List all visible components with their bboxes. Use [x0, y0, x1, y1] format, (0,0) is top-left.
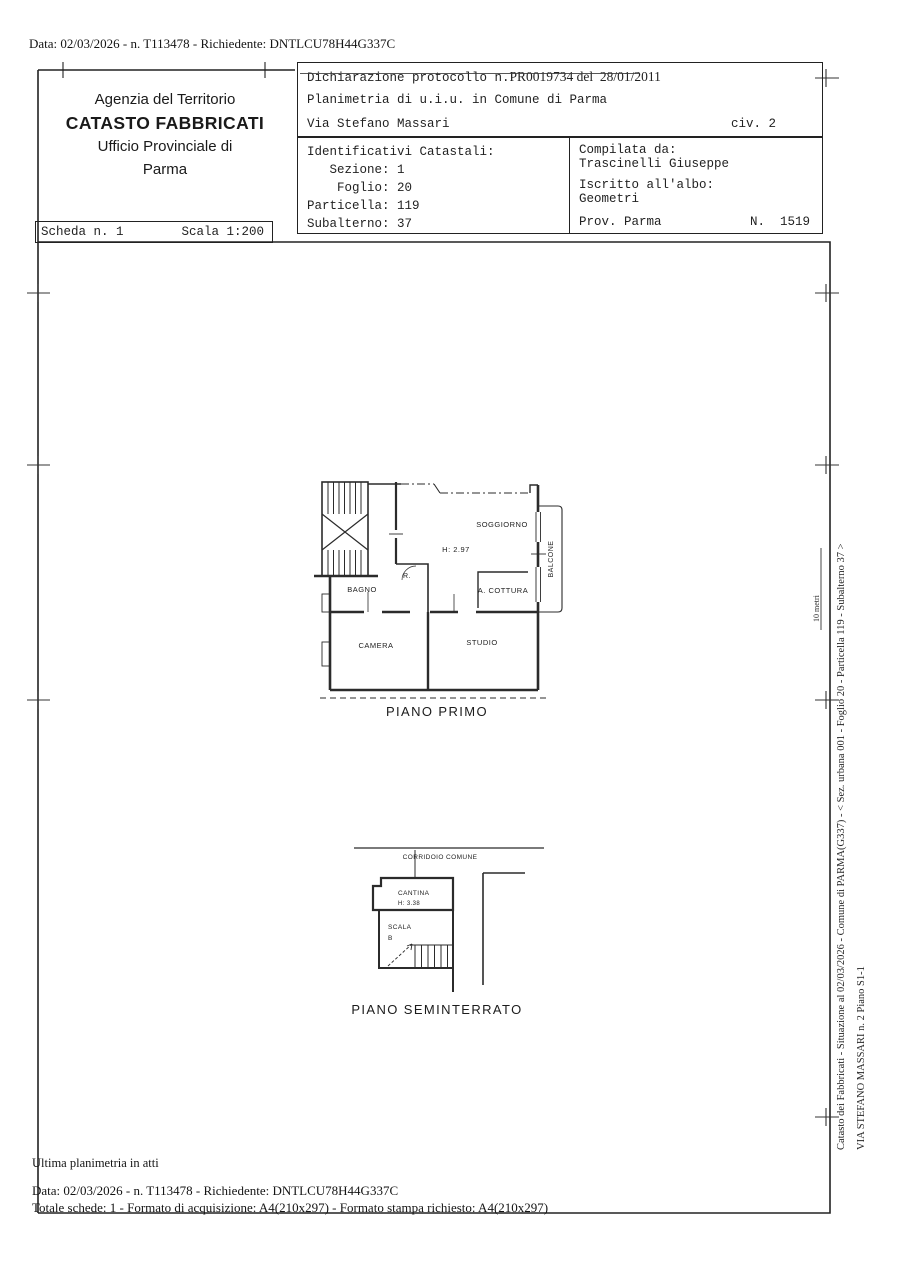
office-city: Parma — [40, 158, 290, 181]
province-label: Prov. Parma — [579, 215, 662, 229]
albo-value: Geometri — [579, 192, 822, 206]
scheda-number: Scheda n. 1 — [41, 225, 124, 239]
first-floor-plan: SOGGIORNO H: 2.97 R. BAGNO A. COTTURA CA… — [306, 472, 568, 722]
footer-data-line: Data: 02/03/2026 - n. T113478 - Richiede… — [32, 1183, 398, 1199]
street-name: Via Stefano Massari — [307, 117, 450, 131]
planimetria-line: Planimetria di u.i.u. in Comune di Parma — [307, 93, 814, 107]
office-line: Ufficio Provinciale di — [40, 135, 290, 158]
registration-number: N. 1519 — [750, 215, 810, 229]
protocol-row: Dichiarazione protocollo n.PR0019734 del… — [307, 69, 814, 85]
albo-label: Iscritto all'albo: — [579, 178, 822, 192]
corridor-label: CORRIDOIO COMUNE — [403, 854, 478, 861]
room-label-ripostiglio: R. — [403, 573, 411, 580]
first-floor-caption: PIANO PRIMO — [306, 704, 568, 719]
identifier-subalterno: Subalterno: 37 — [307, 215, 569, 233]
room-label-cantina: CANTINA — [398, 890, 430, 897]
compiler-info: Compilata da: Trascinelli Giuseppe Iscri… — [569, 137, 822, 233]
agency-header: Agenzia del Territorio CATASTO FABBRICAT… — [40, 88, 290, 181]
scale-bar-label: 10 metri — [812, 560, 822, 622]
room-label-soggiorno: SOGGIORNO — [476, 520, 528, 529]
room-label-balcone: BALCONE — [548, 541, 555, 578]
room-label-cottura: A. COTTURA — [478, 586, 528, 595]
basement-walls — [354, 848, 544, 992]
identifier-sezione: Sezione: 1 — [307, 161, 569, 179]
protocol-value: PR0019734 del 28/01/2011 — [510, 69, 661, 84]
room-label-bagno: BAGNO — [347, 585, 377, 594]
basement-floor-plan: CORRIDOIO COMUNE CANTINA H: 3.38 SCALA B — [348, 842, 548, 1022]
cadastral-document-page: Data: 02/03/2026 - n. T113478 - Richiede… — [0, 0, 903, 1280]
compiler-name: Trascinelli Giuseppe — [579, 157, 822, 171]
identifier-particella: Particella: 119 — [307, 197, 569, 215]
basement-caption: PIANO SEMINTERRATO — [327, 1002, 547, 1017]
compiler-label: Compilata da: — [579, 143, 822, 157]
room-label-camera: CAMERA — [358, 641, 393, 650]
room-height-label: H: 2.97 — [442, 545, 470, 554]
cadastral-identifiers: Identificativi Catastali: Sezione: 1 Fog… — [298, 137, 569, 233]
room-label-studio: STUDIO — [466, 638, 497, 647]
footer-note: Ultima planimetria in atti — [32, 1156, 159, 1171]
cantina-height-label: H: 3.38 — [398, 901, 420, 907]
address-row: Via Stefano Massari civ. 2 — [307, 117, 814, 131]
sidebar-cadastral-reference: Catasto dei Fabbricati - Situazione al 0… — [836, 440, 850, 1150]
identifiers-box: Identificativi Catastali: Sezione: 1 Fog… — [297, 136, 823, 234]
registration-row: Prov. Parma N. 1519 — [579, 215, 822, 229]
agency-name: Agenzia del Territorio — [40, 88, 290, 111]
sidebar-address-reference: VIA STEFANO MASSARI n. 2 Piano S1-1 — [856, 880, 870, 1150]
scan-header-line: Data: 02/03/2026 - n. T113478 - Richiede… — [29, 36, 395, 52]
identifiers-title: Identificativi Catastali: — [307, 143, 569, 161]
civic-number: civ. 2 — [731, 117, 776, 131]
room-label-scala: SCALA — [388, 924, 412, 931]
identifier-foglio: Foglio: 20 — [307, 179, 569, 197]
scan-artifact-line — [300, 73, 640, 74]
scale-label: Scala 1:200 — [182, 225, 265, 239]
scheda-box: Scheda n. 1 Scala 1:200 — [35, 221, 273, 243]
scala-letter-label: B — [388, 935, 393, 942]
footer-format-line: Totale schede: 1 - Formato di acquisizio… — [32, 1200, 548, 1216]
catasto-title: CATASTO FABBRICATI — [40, 111, 290, 135]
